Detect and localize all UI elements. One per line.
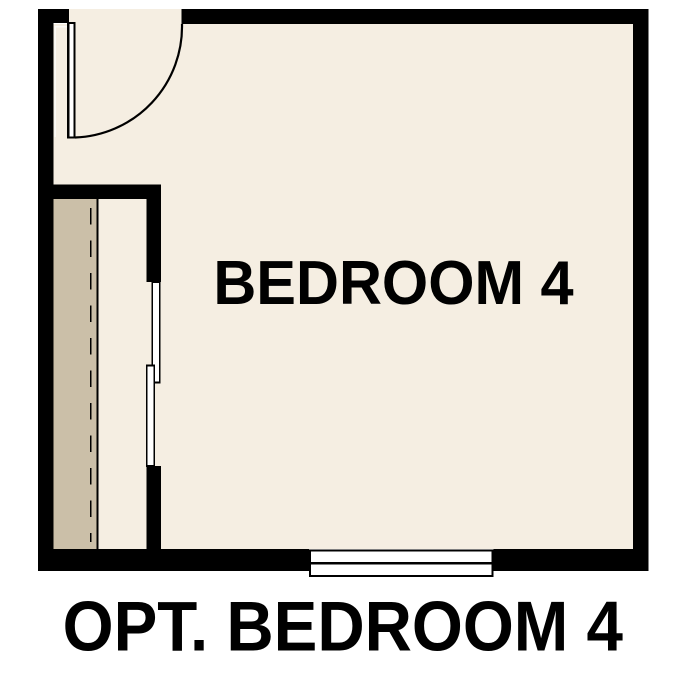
svg-text:OPT. BEDROOM 4: OPT. BEDROOM 4: [63, 587, 623, 666]
svg-text:BEDROOM 4: BEDROOM 4: [213, 248, 573, 318]
